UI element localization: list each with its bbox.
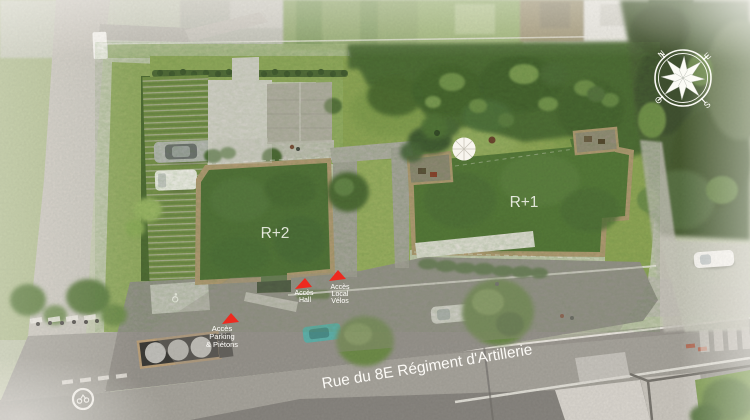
svg-text:Vélos: Vélos — [331, 298, 349, 305]
svg-text:Accès: Accès — [294, 290, 314, 297]
svg-text:Accès: Accès — [330, 284, 350, 291]
svg-text:Hall: Hall — [299, 297, 312, 304]
svg-text:Local: Local — [332, 291, 349, 298]
svg-text:& Piétons: & Piétons — [206, 340, 238, 349]
